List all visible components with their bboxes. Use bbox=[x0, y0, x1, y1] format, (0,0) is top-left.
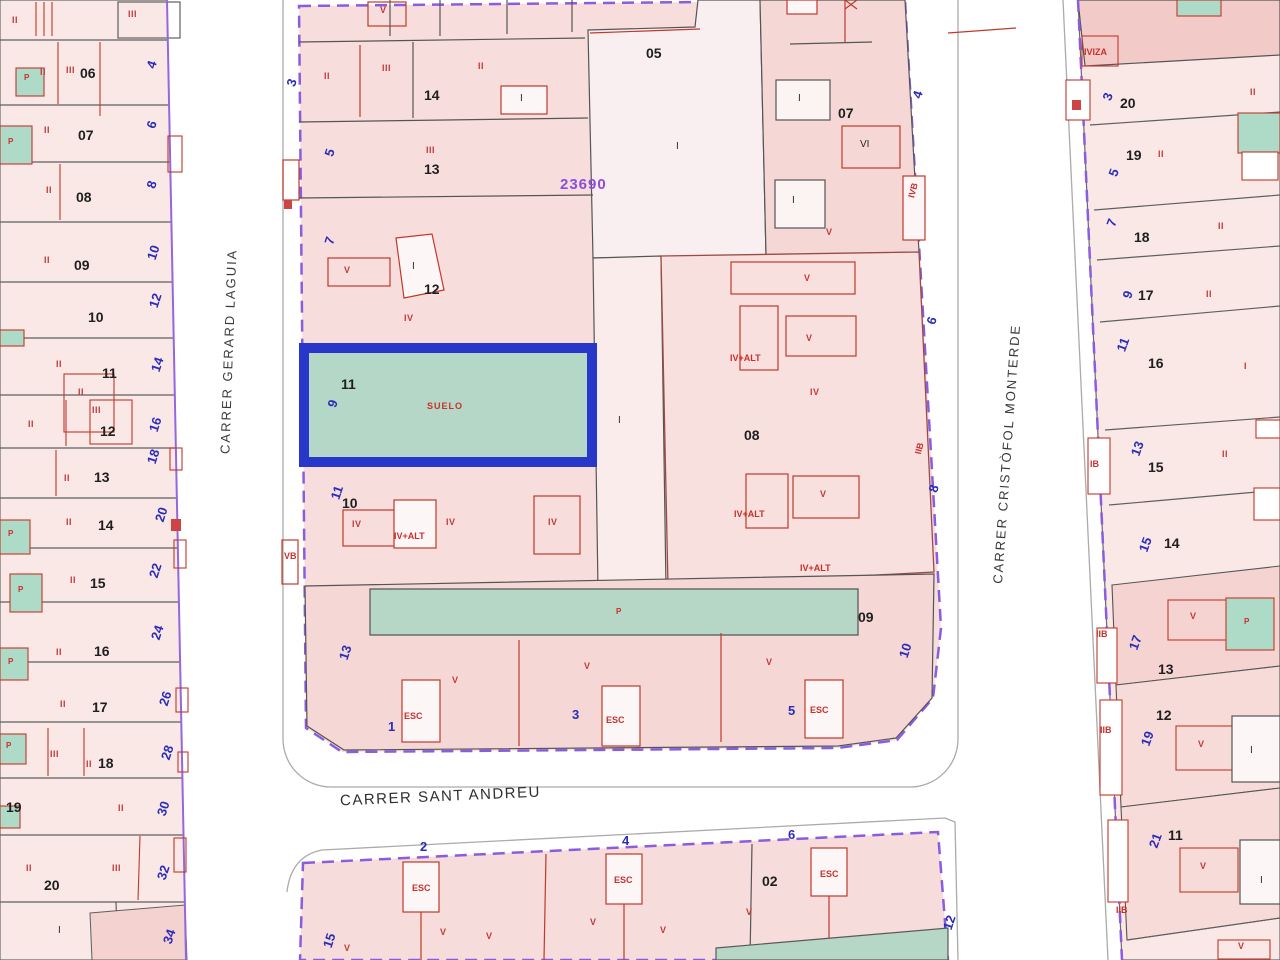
parcel-05[interactable] bbox=[588, 0, 766, 258]
cadastral-map-viewport: 11 9 SUELO CARRER GERARD LAGUIA CARRER C… bbox=[0, 0, 1280, 960]
bottom-block[interactable] bbox=[300, 832, 948, 960]
right-block[interactable] bbox=[1066, 0, 1280, 960]
parcel-strip[interactable] bbox=[593, 256, 666, 590]
right-block-white-box bbox=[1242, 152, 1278, 180]
parcel-08[interactable] bbox=[661, 252, 934, 586]
selected-parcel-land-use-label: SUELO bbox=[427, 401, 463, 411]
middle-block-red-marker bbox=[284, 200, 292, 209]
right-block-red-marker bbox=[1072, 100, 1081, 110]
map-canvas bbox=[0, 0, 1280, 960]
cadastral-reference-number: 23690 bbox=[560, 176, 607, 193]
left-block-red-marker bbox=[171, 519, 181, 531]
selected-parcel-number: 11 bbox=[341, 377, 356, 391]
green-courtyard-strip bbox=[370, 589, 858, 635]
selected-parcel-street-number: 9 bbox=[325, 398, 340, 409]
left-block[interactable] bbox=[0, 0, 188, 960]
left-block-bottom-parcel[interactable] bbox=[90, 905, 187, 960]
selected-parcel[interactable]: 11 9 SUELO bbox=[299, 343, 597, 467]
